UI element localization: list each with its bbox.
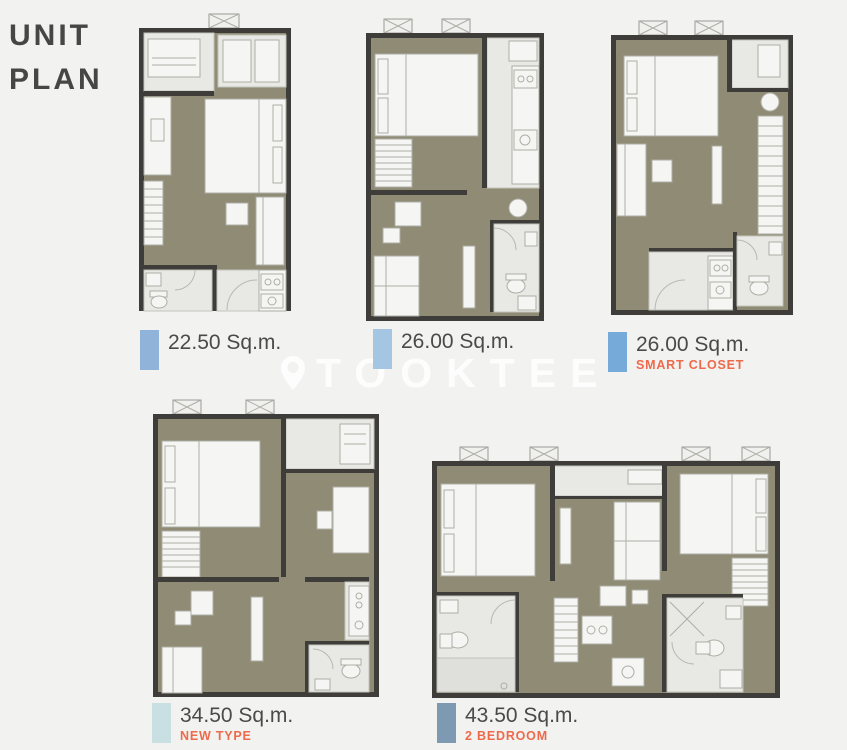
desk — [144, 97, 171, 175]
ac-vent-icon — [209, 14, 239, 28]
kitchen — [345, 582, 369, 640]
ac-vent-icon — [695, 21, 723, 35]
unit-d-label: 34.50 Sq.m. NEW TYPE — [152, 703, 293, 744]
kitchen — [487, 38, 539, 188]
interior-wall — [550, 461, 555, 581]
bathroom — [490, 220, 539, 312]
ac-vent-icon — [742, 447, 770, 461]
bed — [205, 99, 286, 193]
side-table — [226, 203, 248, 225]
unit-area-label: 34.50 Sq.m. — [180, 703, 293, 729]
unit-tag-label: SMART CLOSET — [636, 358, 749, 373]
interior-wall — [482, 33, 487, 188]
kitchen — [217, 270, 286, 311]
interior-wall — [281, 473, 286, 577]
sofa — [614, 502, 660, 580]
bed — [375, 54, 478, 136]
ac-vent-icon — [246, 400, 274, 414]
ac-vent-icon — [384, 19, 412, 33]
sofa — [162, 647, 202, 693]
interior-wall — [662, 461, 667, 571]
unit-area-label: 26.00 Sq.m. — [636, 332, 749, 358]
sofa — [374, 256, 419, 316]
page-title-line1: UNIT — [9, 14, 103, 58]
unit-tag-label: 2 BEDROOM — [465, 729, 578, 744]
unit-area-label: 22.50 Sq.m. — [168, 330, 281, 356]
interior-wall — [144, 265, 215, 270]
floor-plan-26-00 — [366, 18, 544, 323]
ac-vent-icon — [639, 21, 667, 35]
page-title: UNIT PLAN — [9, 14, 103, 102]
ac-vent-icon — [173, 400, 201, 414]
sofa — [256, 197, 284, 265]
wardrobe — [375, 139, 412, 187]
area-color-swatch — [608, 332, 627, 372]
wash-basin — [509, 199, 527, 217]
side-table — [652, 160, 672, 182]
ac-vent-icon — [682, 447, 710, 461]
unit-area-label: 26.00 Sq.m. — [401, 329, 514, 355]
bed — [441, 484, 535, 576]
shelves — [144, 181, 163, 245]
ac-vent-icon — [460, 447, 488, 461]
bathroom — [305, 641, 369, 692]
wardrobe — [162, 531, 200, 577]
kitchen — [649, 248, 733, 310]
ac-vent-icon — [442, 19, 470, 33]
balcony — [727, 35, 788, 92]
tv-console — [560, 508, 571, 564]
unit-area-label: 43.50 Sq.m. — [465, 703, 578, 729]
bed — [680, 474, 768, 554]
area-color-swatch — [437, 703, 456, 743]
area-color-swatch — [152, 703, 171, 743]
location-pin-icon — [278, 354, 308, 394]
unit-c-label: 26.00 Sq.m. SMART CLOSET — [608, 332, 749, 373]
floor-plan-34-50-new-type — [153, 399, 379, 699]
balcony — [554, 466, 664, 499]
bed — [162, 441, 260, 527]
floor-plan-26-00-smart-closet — [611, 20, 793, 315]
bathroom — [733, 232, 783, 310]
floor-plan-22-50 — [139, 13, 291, 313]
page-title-line2: PLAN — [9, 58, 103, 102]
floor-plan-43-50-2-bedroom — [432, 446, 780, 698]
bathroom — [662, 594, 743, 692]
tv-console — [251, 597, 263, 661]
unit-e-label: 43.50 Sq.m. 2 BEDROOM — [437, 703, 578, 744]
area-color-swatch — [140, 330, 159, 370]
unit-a-label: 22.50 Sq.m. — [140, 330, 281, 370]
unit-b-label: 26.00 Sq.m. — [373, 329, 514, 369]
balcony — [144, 33, 214, 96]
wardrobe — [218, 35, 286, 87]
tv-console — [463, 246, 475, 308]
bathroom — [144, 270, 212, 311]
interior-wall — [305, 577, 369, 582]
ac-vent-icon — [530, 447, 558, 461]
balcony — [281, 414, 374, 473]
interior-wall — [158, 577, 279, 582]
area-color-swatch — [373, 329, 392, 369]
tv-console — [712, 146, 722, 204]
unit-tag-label: NEW TYPE — [180, 729, 293, 744]
sofa — [617, 144, 646, 216]
interior-wall — [212, 265, 217, 311]
bathroom — [437, 592, 519, 692]
unit-plan-sheet: UNIT PLAN TOOKTEE — [0, 0, 847, 750]
bed — [624, 56, 718, 136]
interior-wall — [371, 190, 467, 195]
